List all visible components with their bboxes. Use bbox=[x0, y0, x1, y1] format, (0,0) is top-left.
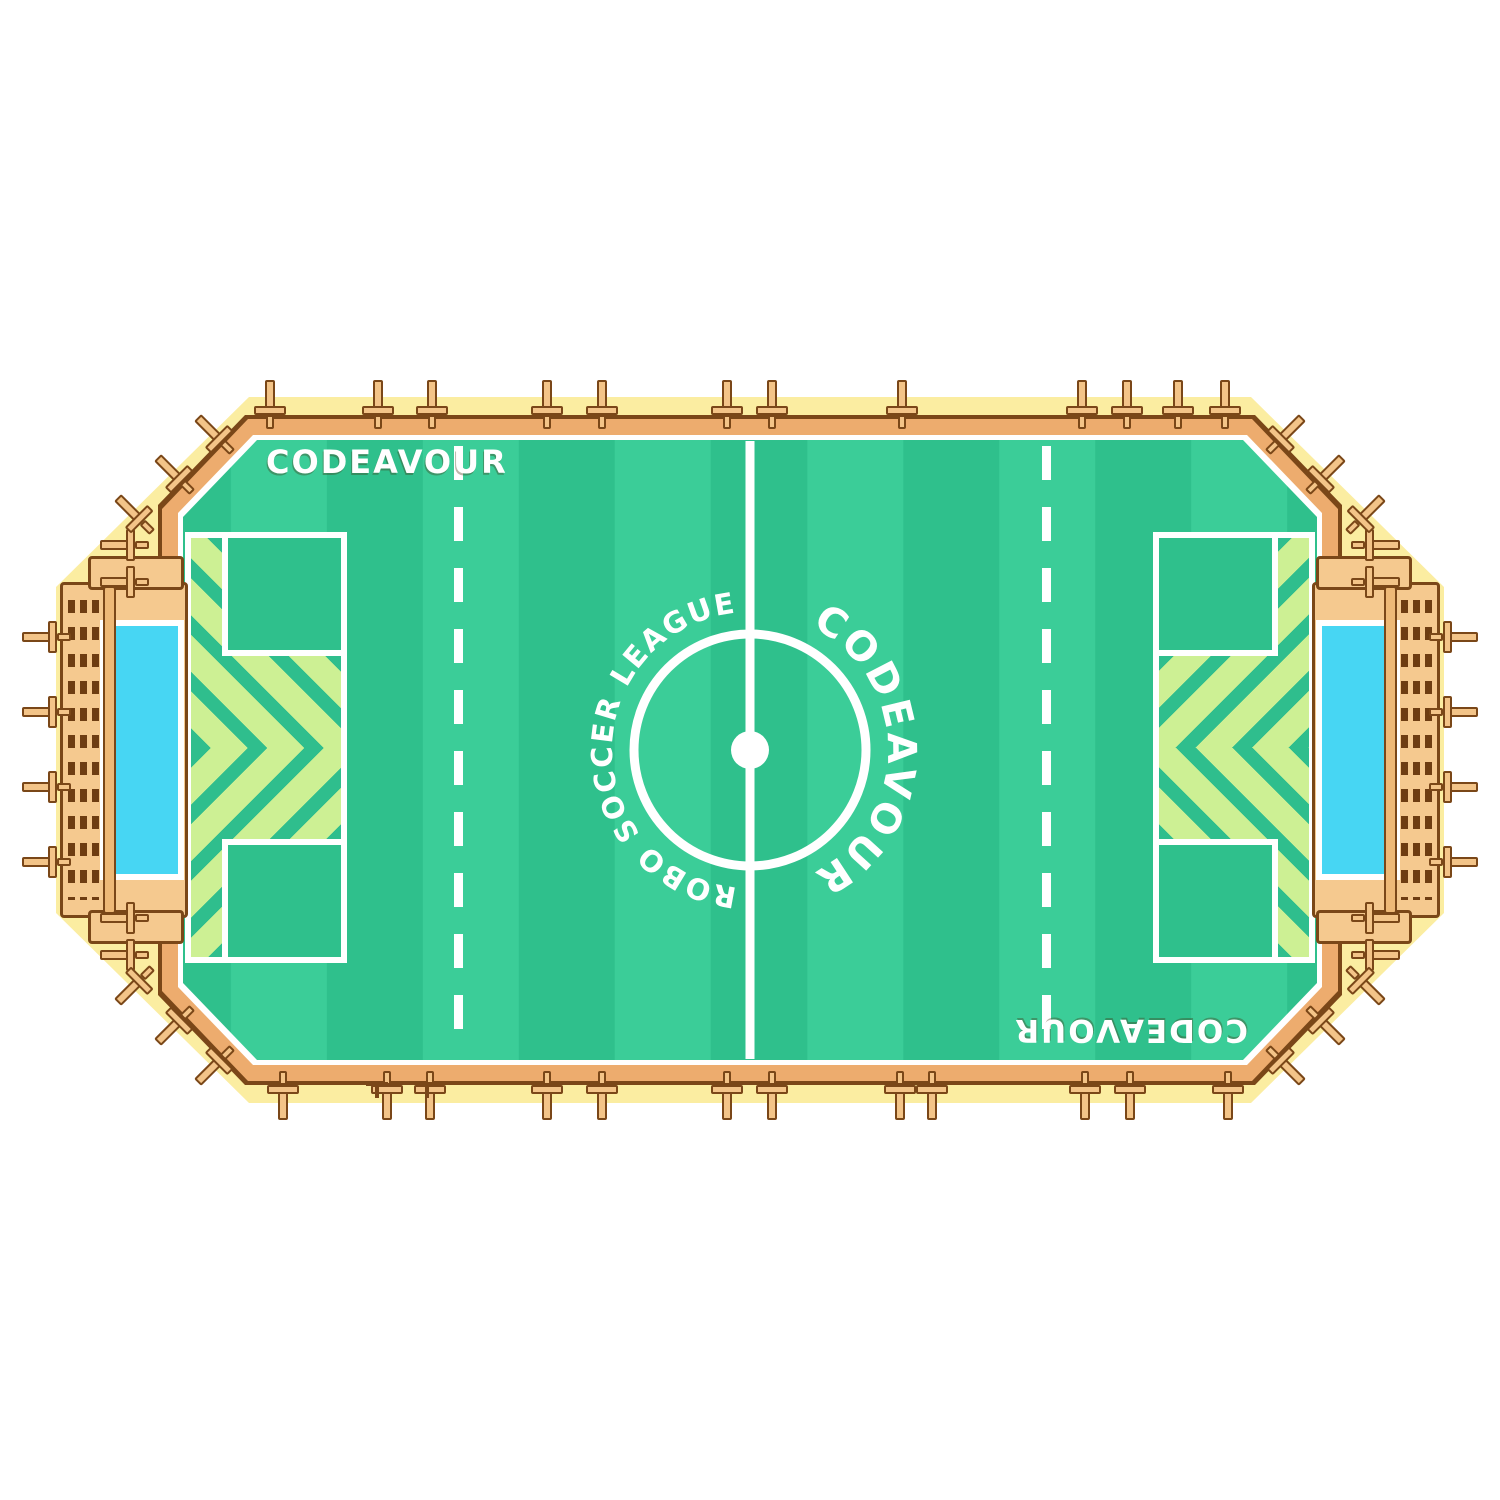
clamp-bar bbox=[756, 406, 788, 415]
clamp bbox=[22, 619, 74, 655]
clamp-bar bbox=[916, 1085, 948, 1094]
clamp bbox=[1426, 694, 1478, 730]
right-zone-box-top bbox=[1153, 532, 1278, 656]
clamp-bar bbox=[1443, 771, 1452, 803]
right-goal-slot-column bbox=[1413, 600, 1420, 900]
clamp bbox=[1112, 1068, 1148, 1120]
clamp-bar bbox=[416, 406, 448, 415]
clamp bbox=[1426, 844, 1478, 880]
clamp-foot bbox=[1351, 578, 1365, 586]
clamp-bar bbox=[1209, 406, 1241, 415]
clamp-foot bbox=[1126, 1071, 1134, 1085]
clamp-foot bbox=[1078, 415, 1086, 429]
clamp-bar bbox=[48, 771, 57, 803]
left-goal-slot-column bbox=[92, 600, 99, 900]
clamp-foot bbox=[543, 415, 551, 429]
clamp-post bbox=[1370, 913, 1400, 923]
clamp-post bbox=[1448, 782, 1478, 792]
clamp-foot bbox=[598, 415, 606, 429]
clamp-foot bbox=[1265, 440, 1281, 456]
clamp-foot bbox=[180, 1005, 196, 1021]
clamp bbox=[252, 380, 288, 432]
clamp-post bbox=[895, 1090, 905, 1120]
clamp-bar bbox=[1162, 406, 1194, 415]
clamp bbox=[1348, 900, 1400, 936]
clamp-foot bbox=[1429, 633, 1443, 641]
clamp-bar bbox=[126, 566, 135, 598]
clamp-bar bbox=[267, 1085, 299, 1094]
clamp-foot bbox=[140, 965, 156, 981]
clamp-bar bbox=[1443, 696, 1452, 728]
clamp-foot bbox=[220, 1045, 236, 1061]
clamp bbox=[584, 1068, 620, 1120]
arena-stage: CODEAVOUR CODEAVOUR ROBO SOCCER LEAGUE C… bbox=[0, 0, 1500, 1500]
clamp-bar bbox=[756, 1085, 788, 1094]
clamp bbox=[1207, 380, 1243, 432]
clamp-foot bbox=[723, 1071, 731, 1085]
clamp-foot bbox=[135, 914, 149, 922]
clamp-post bbox=[1448, 632, 1478, 642]
right-dashed-line bbox=[1042, 446, 1051, 1054]
clamp-foot bbox=[543, 1071, 551, 1085]
clamp-foot bbox=[279, 1071, 287, 1085]
clamp bbox=[414, 380, 450, 432]
clamp bbox=[584, 380, 620, 432]
clamp-foot bbox=[428, 415, 436, 429]
clamp-post bbox=[1125, 1090, 1135, 1120]
clamp bbox=[1109, 380, 1145, 432]
left-goal-handle-bar bbox=[103, 586, 116, 914]
clamp-bar bbox=[884, 1085, 916, 1094]
wordmark-top-left: CODEAVOUR bbox=[266, 443, 508, 481]
clamp-foot bbox=[1224, 1071, 1232, 1085]
clamp-foot bbox=[374, 415, 382, 429]
clamp-bar bbox=[126, 902, 135, 934]
wordmark-bottom-right: CODEAVOUR bbox=[1058, 1012, 1248, 1048]
clamp-bar bbox=[1443, 621, 1452, 653]
clamp-foot bbox=[768, 415, 776, 429]
clamp-foot bbox=[1305, 480, 1321, 496]
clamp bbox=[1426, 619, 1478, 655]
clamp-bar bbox=[48, 621, 57, 653]
clamp-post bbox=[1448, 707, 1478, 717]
clamp-bar bbox=[886, 406, 918, 415]
clamp-foot bbox=[1081, 1071, 1089, 1085]
clamp-foot bbox=[57, 708, 71, 716]
clamp-foot bbox=[57, 783, 71, 791]
clamp bbox=[22, 694, 74, 730]
clamp bbox=[1210, 1068, 1246, 1120]
clamp bbox=[529, 380, 565, 432]
clamp-bar bbox=[1066, 406, 1098, 415]
right-goal-handle-bar bbox=[1384, 586, 1397, 914]
clamp-foot bbox=[135, 578, 149, 586]
clamp-bar bbox=[531, 406, 563, 415]
clamp bbox=[1426, 769, 1478, 805]
t-mark bbox=[416, 1082, 438, 1098]
clamp bbox=[100, 564, 152, 600]
clamp-bar bbox=[1114, 1085, 1146, 1094]
clamp-bar bbox=[586, 1085, 618, 1094]
clamp bbox=[709, 1068, 745, 1120]
clamp-post bbox=[278, 1090, 288, 1120]
right-home-zone bbox=[1153, 532, 1315, 963]
clamp-bar bbox=[362, 406, 394, 415]
clamp bbox=[100, 900, 152, 936]
clamp-bar bbox=[48, 846, 57, 878]
clamp bbox=[1067, 1068, 1103, 1120]
clamp-foot bbox=[57, 633, 71, 641]
clamp-bar bbox=[1111, 406, 1143, 415]
clamp-post bbox=[722, 1090, 732, 1120]
clamp-foot bbox=[768, 1071, 776, 1085]
clamp bbox=[754, 1068, 790, 1120]
clamp-post bbox=[1448, 857, 1478, 867]
clamp-foot bbox=[1351, 914, 1365, 922]
clamp-foot bbox=[1345, 520, 1361, 536]
clamp-foot bbox=[1429, 783, 1443, 791]
clamp-post bbox=[1080, 1090, 1090, 1120]
clamp-post bbox=[542, 1090, 552, 1120]
left-home-zone bbox=[185, 532, 347, 963]
clamp-foot bbox=[220, 440, 236, 456]
clamp bbox=[1064, 380, 1100, 432]
right-goal-slot-column bbox=[1401, 600, 1408, 900]
t-mark bbox=[366, 1082, 388, 1098]
clamp-foot bbox=[1221, 415, 1229, 429]
clamp-post bbox=[1370, 950, 1400, 960]
clamp bbox=[709, 380, 745, 432]
left-zone-box-top bbox=[222, 532, 347, 656]
clamp-foot bbox=[140, 520, 156, 536]
clamp-foot bbox=[896, 1071, 904, 1085]
clamp-foot bbox=[598, 1071, 606, 1085]
clamp bbox=[529, 1068, 565, 1120]
clamp-bar bbox=[531, 1085, 563, 1094]
clamp bbox=[1348, 564, 1400, 600]
clamp-foot bbox=[1174, 415, 1182, 429]
clamp-foot bbox=[57, 858, 71, 866]
clamp bbox=[884, 380, 920, 432]
clamp-post bbox=[1223, 1090, 1233, 1120]
clamp-bar bbox=[1365, 902, 1374, 934]
clamp-foot bbox=[928, 1071, 936, 1085]
clamp-bar bbox=[1212, 1085, 1244, 1094]
clamp bbox=[22, 769, 74, 805]
clamp-post bbox=[767, 1090, 777, 1120]
clamp-post bbox=[1370, 540, 1400, 550]
left-zone-box-bottom bbox=[222, 839, 347, 963]
clamp bbox=[754, 380, 790, 432]
clamp bbox=[914, 1068, 950, 1120]
clamp bbox=[1160, 380, 1196, 432]
clamp bbox=[882, 1068, 918, 1120]
clamp-bar bbox=[1443, 846, 1452, 878]
clamp-post bbox=[597, 1090, 607, 1120]
clamp-bar bbox=[1069, 1085, 1101, 1094]
clamp bbox=[360, 380, 396, 432]
left-dashed-line bbox=[454, 446, 463, 1054]
clamp-foot bbox=[723, 415, 731, 429]
clamp-foot bbox=[266, 415, 274, 429]
clamp bbox=[22, 844, 74, 880]
clamp-bar bbox=[586, 406, 618, 415]
clamp-bar bbox=[48, 696, 57, 728]
clamp-foot bbox=[1429, 708, 1443, 716]
clamp-bar bbox=[711, 406, 743, 415]
clamp-foot bbox=[1429, 858, 1443, 866]
clamp-foot bbox=[1123, 415, 1131, 429]
clamp bbox=[265, 1068, 301, 1120]
left-goal-slot-column bbox=[80, 600, 87, 900]
clamp-bar bbox=[1365, 566, 1374, 598]
clamp-foot bbox=[180, 480, 196, 496]
clamp-bar bbox=[254, 406, 286, 415]
clamp-post bbox=[927, 1090, 937, 1120]
clamp-post bbox=[1370, 577, 1400, 587]
right-zone-box-bottom bbox=[1153, 839, 1278, 963]
clamp-bar bbox=[711, 1085, 743, 1094]
clamp-foot bbox=[898, 415, 906, 429]
